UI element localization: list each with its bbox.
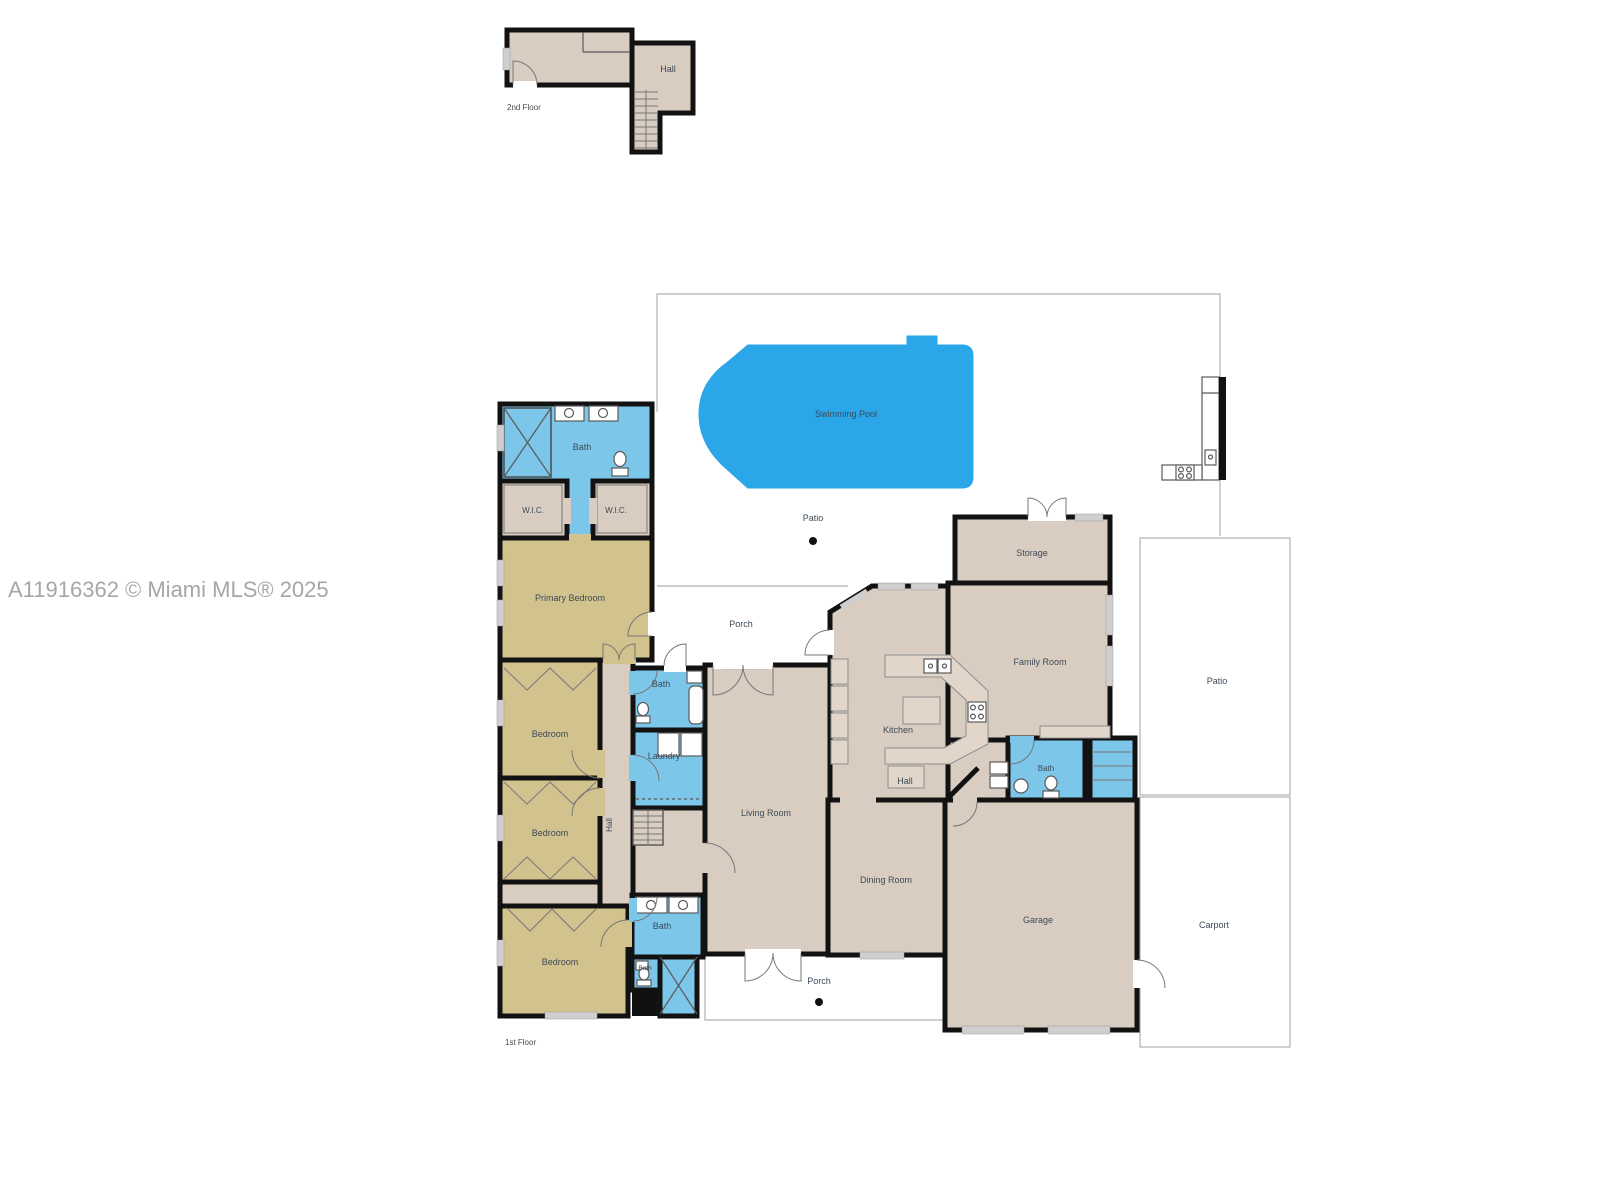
pantry-cabinet (831, 713, 848, 738)
dryer (681, 733, 702, 756)
label-lower-porch: Porch (807, 976, 831, 986)
window (503, 48, 510, 70)
window (1075, 514, 1103, 521)
label-lower-bath: Bath (653, 921, 672, 931)
pantry-cabinet (831, 686, 848, 711)
door-arc (1137, 960, 1165, 988)
pedestal-sink (1014, 779, 1028, 793)
label-bedroom-middle: Bedroom (532, 828, 569, 838)
outdoor-kitchen (1162, 377, 1226, 480)
window (497, 560, 504, 586)
toilet-bowl (614, 452, 626, 467)
stove (968, 702, 986, 722)
second-floor-hall (632, 43, 693, 152)
label-kitchen: Kitchen (883, 725, 913, 735)
staircase-first-floor (633, 810, 663, 845)
porch-column-dot (815, 998, 823, 1006)
window (497, 940, 504, 966)
lower-porch-outline (705, 957, 945, 1020)
label-hall-bath: Bath (652, 679, 671, 689)
garage-door-sill (1048, 1026, 1110, 1034)
label-swimming-pool: Swimming Pool (815, 409, 877, 419)
toilet-bowl (638, 703, 649, 716)
label-garage: Garage (1023, 915, 1053, 925)
label-center-hall: Hall (897, 776, 913, 786)
door-arc (664, 644, 686, 666)
window (497, 815, 504, 841)
outdoor-sink (1205, 450, 1216, 465)
house-rooms (500, 404, 1137, 1030)
label-garage-bath: Bath (1038, 764, 1054, 773)
label-bedroom-hall: Hall (605, 818, 614, 832)
closet-strip (500, 882, 600, 906)
second-floor-room (507, 30, 632, 85)
window (497, 425, 504, 451)
vestibule-step (990, 776, 1008, 788)
window (497, 600, 504, 626)
floor-plan-page: Hall 2nd Floor Swimming Pool Patio Porch… (0, 0, 1600, 1200)
window (911, 583, 938, 590)
label-dining-room: Dining Room (860, 875, 912, 885)
mls-watermark: A11916362 © Miami MLS® 2025 (8, 577, 329, 602)
label-storage: Storage (1016, 548, 1048, 558)
label-2nd-floor: 2nd Floor (507, 103, 541, 112)
toilet-tank (612, 468, 628, 476)
window (878, 583, 905, 590)
label-upper-porch: Porch (729, 619, 753, 629)
label-family-room: Family Room (1013, 657, 1066, 667)
toilet-tank (636, 716, 650, 723)
vanity-sink (669, 897, 698, 913)
pantry-cabinet (831, 659, 848, 684)
label-living-room: Living Room (741, 808, 791, 818)
side-patio-outline (1140, 538, 1290, 795)
toilet-tank (637, 980, 651, 986)
label-primary-bath: Bath (573, 442, 592, 452)
garage-bath-closet (1090, 738, 1135, 802)
staircase-second-floor (634, 90, 658, 150)
label-wic-right: W.I.C. (605, 506, 627, 515)
label-laundry: Laundry (648, 751, 681, 761)
label-wic-left: W.I.C. (522, 506, 544, 515)
kitchen-island (903, 697, 940, 724)
label-hall-2nd: Hall (660, 64, 676, 74)
window (497, 700, 504, 726)
label-carport: Carport (1199, 920, 1230, 930)
vestibule-step (990, 762, 1008, 774)
kitchen-sink (938, 659, 951, 673)
lower-bath-fixtures (636, 897, 698, 913)
bathtub (689, 686, 703, 724)
label-bedroom-bottom: Bedroom (542, 957, 579, 967)
media-builtin (1040, 726, 1110, 738)
window (1106, 646, 1113, 686)
label-pool-patio: Patio (803, 513, 824, 523)
window (545, 1012, 597, 1019)
bedroom-hall (600, 660, 633, 906)
label-1st-floor: 1st Floor (505, 1038, 536, 1047)
garage-door-sill (962, 1026, 1024, 1034)
bedroom-top-room (500, 660, 600, 778)
window (1106, 595, 1113, 635)
pantry-cabinet (831, 740, 848, 764)
toilet-tank (1043, 791, 1059, 798)
second-floor-plan (503, 30, 693, 152)
label-bedroom-top: Bedroom (532, 729, 569, 739)
sink (687, 671, 702, 683)
window (860, 952, 904, 959)
kitchen-sink (924, 659, 937, 673)
label-small-bath: Bath (638, 965, 652, 972)
vanity-sink (636, 897, 667, 913)
patio-column-dot (809, 537, 817, 545)
label-side-patio: Patio (1207, 676, 1228, 686)
outdoor-kitchen-wall (1219, 377, 1226, 480)
floor-plan-drawing: Hall 2nd Floor Swimming Pool Patio Porch… (0, 0, 1600, 1200)
chimney-block (632, 990, 660, 1016)
toilet-bowl (1045, 776, 1057, 790)
label-primary-bedroom: Primary Bedroom (535, 593, 605, 603)
